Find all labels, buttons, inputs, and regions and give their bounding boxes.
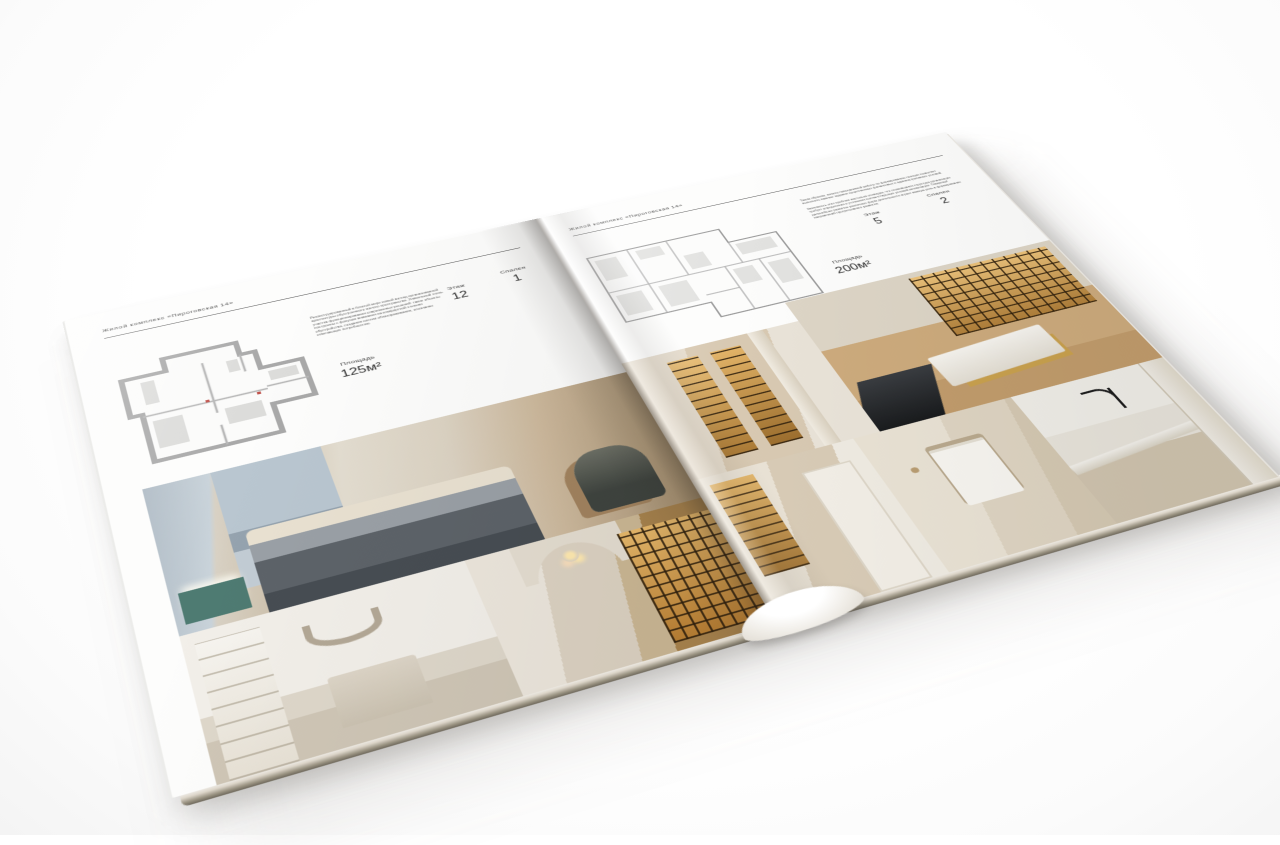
desk-chair [565, 439, 668, 513]
towel-on-rail [928, 437, 1025, 506]
upholstered-headboard [327, 654, 434, 729]
stat-area: Площадь 125м² [330, 352, 389, 381]
page-header: Жилой комплекс «Пироговская 14» [102, 300, 235, 333]
white-table-gold-legs [927, 324, 1066, 386]
stat-bedrooms: Спален 1 [490, 263, 541, 288]
studio-backdrop: Жилой комплекс «Пироговская 14» [0, 0, 1280, 835]
teal-console-with-flowers [177, 576, 252, 624]
description-text: Реконструированный в богатой мере новый … [310, 287, 453, 337]
brass-hook [910, 467, 921, 474]
white-shelving [194, 627, 299, 782]
black-gooseneck-faucet [1080, 386, 1127, 415]
arch-wall-decor [302, 607, 388, 654]
stat-area: Площадь 200м² [822, 252, 880, 278]
stat-floor: Этаж 12 [436, 280, 482, 304]
